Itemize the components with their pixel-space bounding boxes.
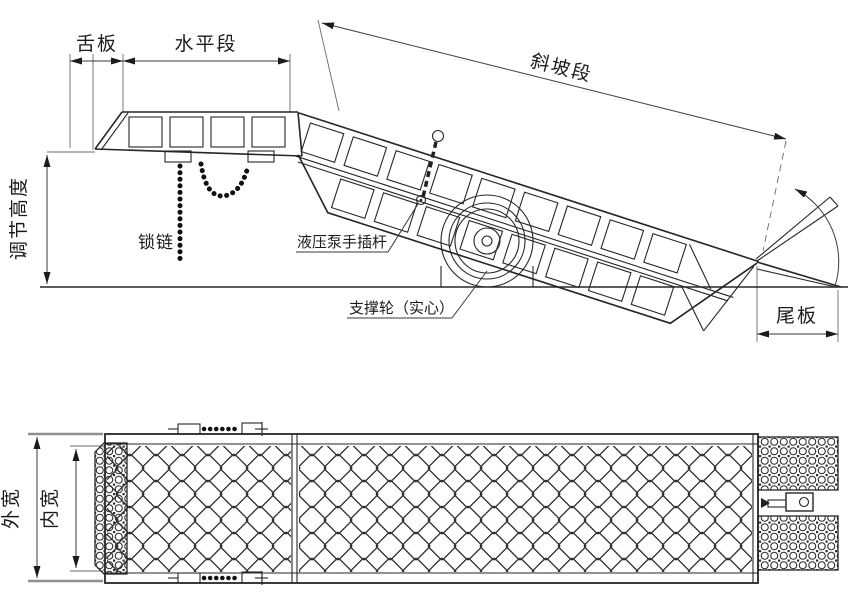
yard-ramp-drawing: 舌板 水平段 斜坡段 调节高度 锁链 尾板 <box>0 0 865 594</box>
label-slope-section: 斜坡段 <box>528 50 594 87</box>
label-tail-plate: 尾板 <box>776 305 818 327</box>
label-adjust-height: 调节高度 <box>8 176 30 260</box>
label-lock-chain: 锁链 <box>138 233 174 253</box>
technical-drawing-page: 舌板 水平段 斜坡段 调节高度 锁链 尾板 <box>0 0 865 594</box>
plan-tongue-plate <box>95 443 127 574</box>
horizontal-platform <box>95 112 302 156</box>
side-elevation-view: 舌板 水平段 斜坡段 调节高度 锁链 尾板 <box>8 20 848 343</box>
plan-tail-plate-bottom <box>758 516 838 570</box>
tow-hitch <box>761 493 813 511</box>
lock-chains <box>165 151 274 262</box>
plan-deck <box>105 434 758 583</box>
plan-top-view: 外宽 内宽 <box>0 422 838 585</box>
label-pump-rod: 液压泵手插杆 <box>297 233 387 251</box>
tail-plate <box>756 189 841 287</box>
dimension-lines <box>47 20 838 342</box>
label-support-wheel: 支撑轮（实心） <box>349 299 454 317</box>
plan-tail-plate-top <box>758 437 838 490</box>
label-tongue-plate: 舌板 <box>76 33 118 55</box>
label-outer-width: 外宽 <box>0 487 22 529</box>
label-inner-width: 内宽 <box>39 487 61 529</box>
slope-truss <box>273 113 759 343</box>
label-horizontal-section: 水平段 <box>174 33 237 55</box>
